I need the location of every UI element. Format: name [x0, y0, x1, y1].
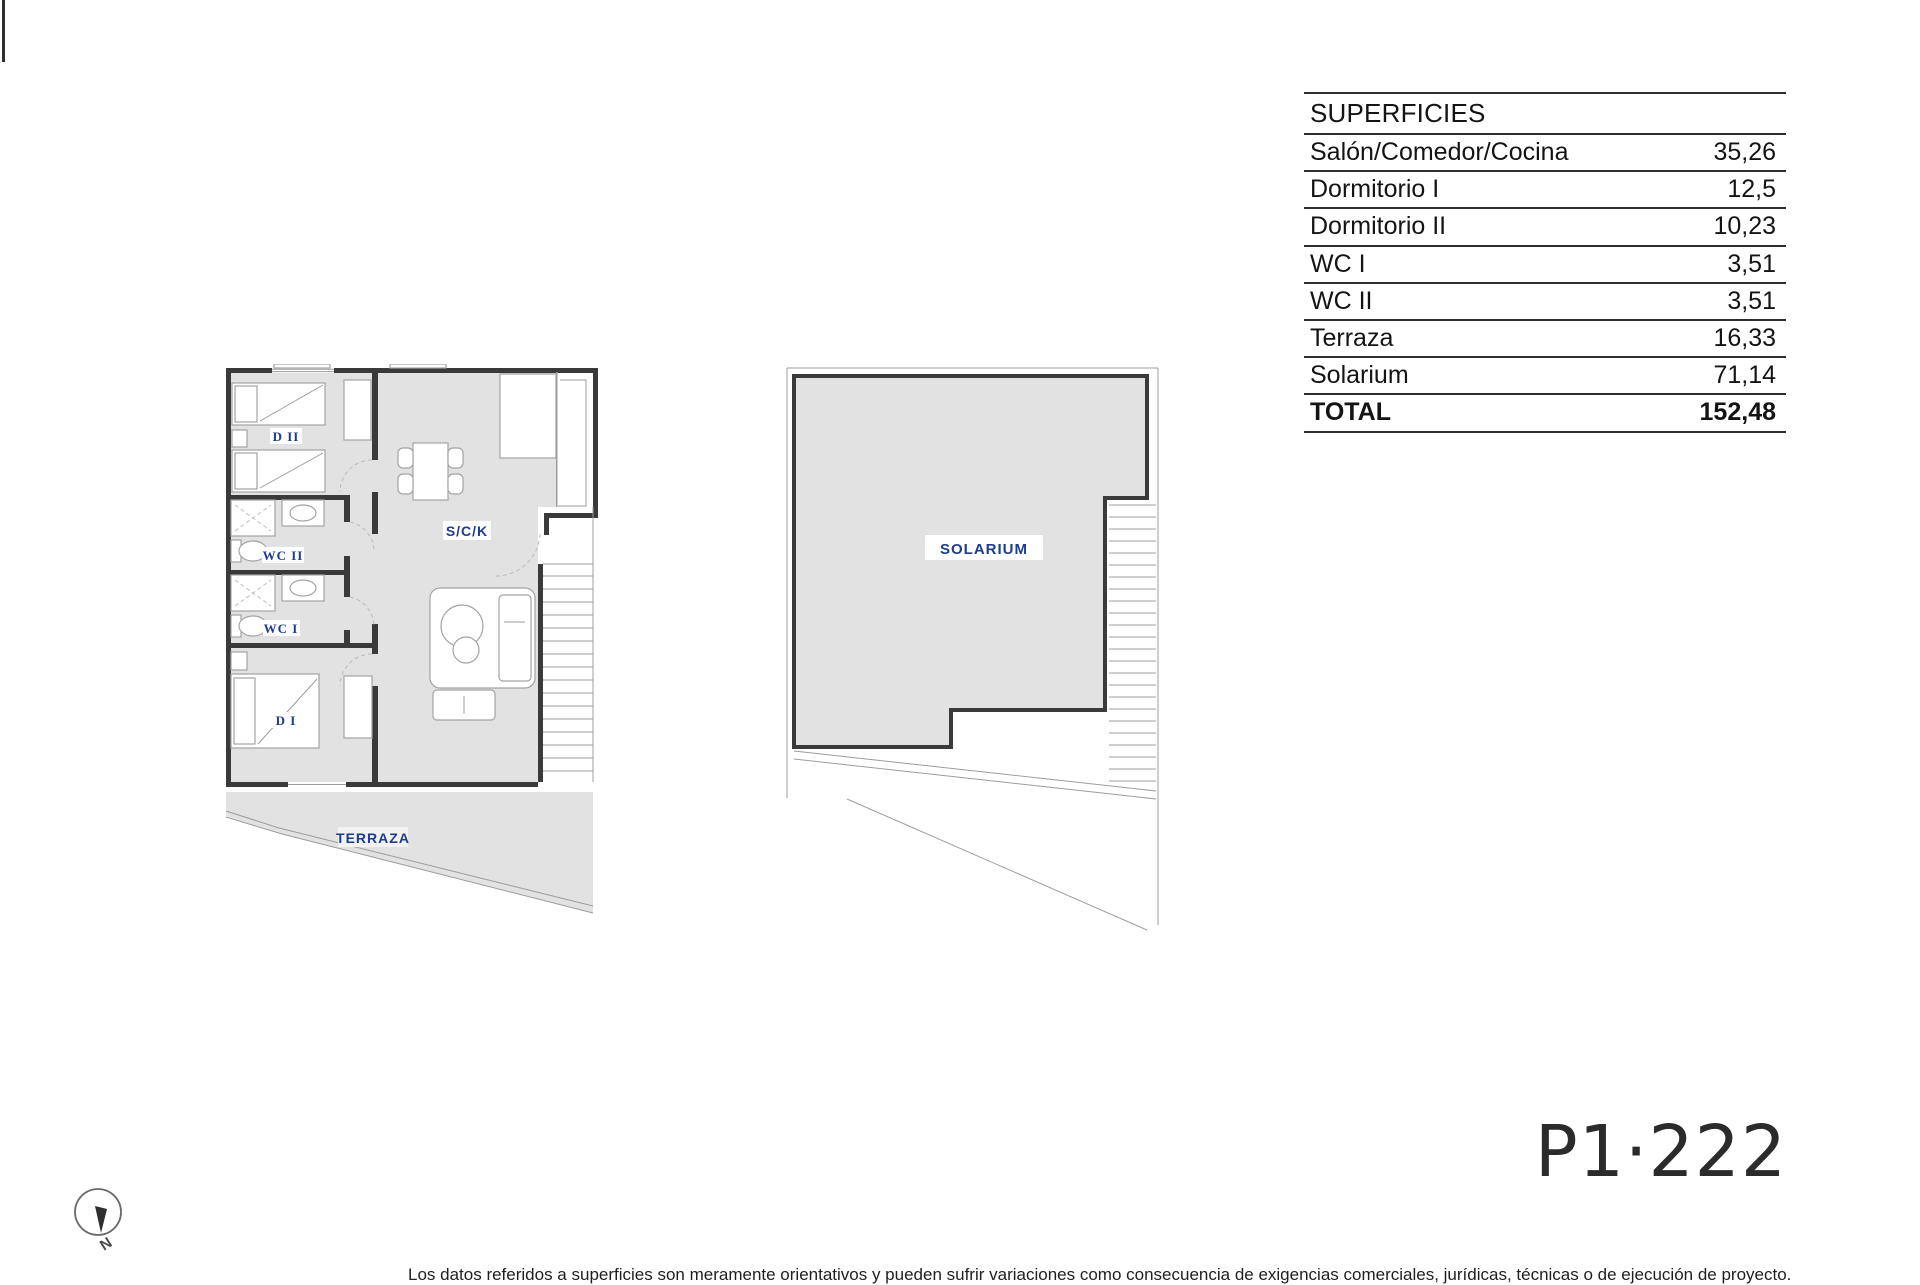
surfaces-table: SUPERFICIES Salón/Comedor/Cocina35,26Dor… — [1304, 92, 1786, 433]
surfaces-rows: Salón/Comedor/Cocina35,26Dormitorio I12,… — [1304, 135, 1786, 433]
glazing-line — [556, 372, 558, 507]
row-value: 3,51 — [1727, 287, 1776, 316]
label-wc1: WC I — [264, 621, 299, 636]
solarium-stairs — [1109, 505, 1156, 781]
row-label: TOTAL — [1310, 398, 1391, 427]
label-wc2: WC II — [263, 548, 304, 563]
row-label: Dormitorio I — [1310, 175, 1439, 204]
compass-north-label: N — [97, 1234, 115, 1254]
chaise — [499, 595, 531, 681]
label-dormitorio1: D I — [276, 713, 297, 728]
dining-table — [413, 443, 448, 500]
table-row: Salón/Comedor/Cocina35,26 — [1304, 135, 1786, 172]
solarium-label-group: SOLARIUM — [925, 535, 1043, 560]
chair — [398, 474, 413, 494]
nightstand — [231, 652, 247, 670]
row-value: 152,48 — [1700, 398, 1776, 427]
disclaimer-text: Los datos referidos a superficies son me… — [408, 1265, 1791, 1285]
table-row: Dormitorio I12,5 — [1304, 172, 1786, 209]
row-value: 35,26 — [1713, 138, 1776, 167]
chair — [448, 474, 463, 494]
label-salon: S/C/K — [446, 523, 488, 539]
row-value: 16,33 — [1713, 324, 1776, 353]
wardrobe — [344, 380, 371, 440]
row-label: Dormitorio II — [1310, 212, 1446, 241]
label-terraza: TERRAZA — [336, 830, 410, 846]
chair — [398, 448, 413, 468]
floorplan-solarium: SOLARIUM — [785, 365, 1165, 935]
row-label: Terraza — [1310, 324, 1393, 353]
pillow — [235, 386, 257, 422]
table-row: Solarium71,14 — [1304, 358, 1786, 395]
terrace-floor — [226, 792, 593, 913]
stairs-treads — [543, 576, 593, 771]
compass-needle — [95, 1206, 107, 1233]
roof-slope-lines — [794, 751, 1156, 930]
wardrobe — [344, 676, 372, 738]
window-sill — [274, 364, 330, 368]
label-solarium: SOLARIUM — [940, 541, 1028, 558]
row-label: WC I — [1310, 250, 1366, 279]
frame-edge-line — [2, 0, 5, 62]
surfaces-table-header: SUPERFICIES — [1304, 94, 1786, 135]
plan-code: P1·222 — [1535, 1116, 1787, 1187]
stairs-treads — [1109, 505, 1156, 781]
row-label: Solarium — [1310, 361, 1409, 390]
kitchen-counter — [500, 374, 556, 458]
row-label: Salón/Comedor/Cocina — [1310, 138, 1568, 167]
row-value: 3,51 — [1727, 250, 1776, 279]
table-row: Dormitorio II10,23 — [1304, 209, 1786, 246]
nightstand — [232, 430, 247, 447]
label-dormitorio2: D II — [273, 429, 300, 444]
row-value: 10,23 — [1713, 212, 1776, 241]
north-arrow: N — [58, 1173, 148, 1268]
row-label: WC II — [1310, 287, 1373, 316]
window-sill — [390, 364, 446, 368]
pillow — [234, 678, 255, 744]
table-row: TOTAL152,48 — [1304, 395, 1786, 432]
pillow — [235, 453, 257, 489]
solarium-floor — [794, 376, 1147, 747]
floorplan-apartment: D II WC II WC I D I S/C/K TERRAZA — [222, 364, 602, 924]
row-value: 71,14 — [1713, 361, 1776, 390]
table-row: Terraza16,33 — [1304, 321, 1786, 358]
balcony-outline — [558, 380, 586, 506]
chair — [448, 448, 463, 468]
table-row: WC I3,51 — [1304, 247, 1786, 284]
row-value: 12,5 — [1727, 175, 1776, 204]
table-row: WC II3,51 — [1304, 284, 1786, 321]
